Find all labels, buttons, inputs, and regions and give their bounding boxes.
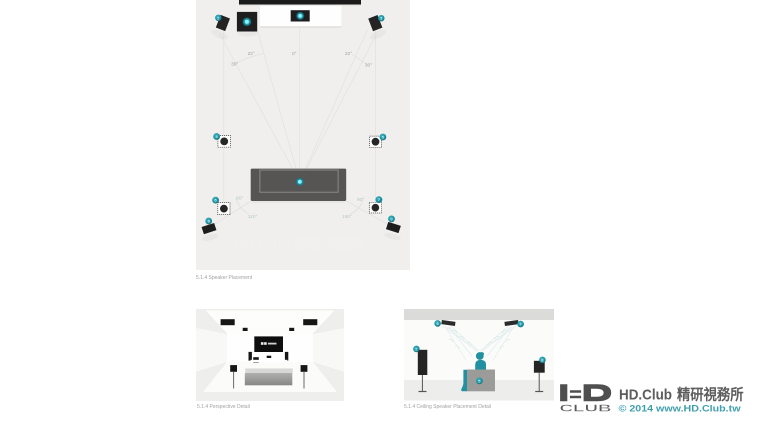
svg-text:30°: 30°	[365, 63, 372, 69]
svg-text:22°: 22°	[248, 51, 255, 57]
svg-text:22°: 22°	[345, 51, 352, 57]
svg-text:HD.Club精研視務所: HD.Club精研視務所	[619, 386, 744, 404]
svg-text:150°: 150°	[342, 214, 352, 220]
svg-text:CLUB: CLUB	[560, 403, 612, 414]
svg-text:5.1.4 Speaker Placement: 5.1.4 Speaker Placement	[196, 275, 253, 281]
svg-text:HD.Club 精研視務所: HD.Club 精研視務所	[234, 236, 363, 252]
svg-text:5.1.4 Ceiling Speaker Placemen: 5.1.4 Ceiling Speaker Placement Detail	[404, 404, 491, 410]
svg-text:90°: 90°	[236, 196, 243, 202]
svg-text:110°: 110°	[248, 214, 258, 220]
svg-text:90°: 90°	[357, 197, 364, 203]
svg-text:0°: 0°	[292, 51, 297, 57]
svg-text:30°: 30°	[231, 62, 238, 68]
svg-text:© 2014 www.HD.Club.tw: © 2014 www.HD.Club.tw	[619, 404, 742, 415]
svg-text:5.1.4 Perspective Detail: 5.1.4 Perspective Detail	[197, 404, 250, 410]
